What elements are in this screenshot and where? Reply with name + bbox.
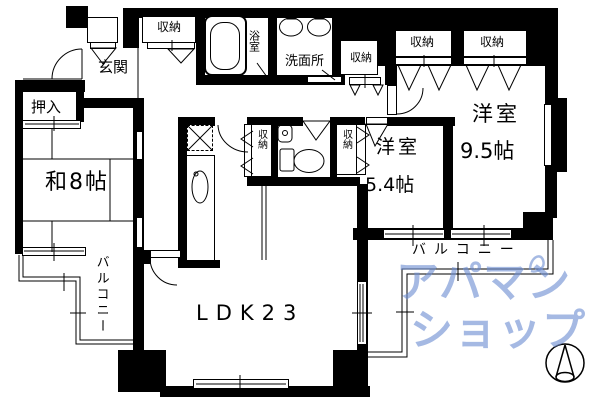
label-ldk: LDK23 [196, 302, 304, 324]
kitchen-sink-icon [192, 171, 208, 203]
label-washroom: 洗面所 [285, 55, 324, 69]
label-genkan: 玄関 [98, 60, 128, 76]
entrance-door-icon [52, 49, 82, 79]
label-storage-kitchen: 収納 [255, 129, 266, 149]
label-bedroom2-size: 5.4帖 [365, 176, 414, 196]
wash-basin-icons [280, 13, 331, 36]
watermark-line2: ショップ [410, 296, 586, 358]
stove-icon [188, 126, 212, 150]
label-balcony-left: バルコニー [94, 255, 108, 335]
label-storage-small: 収納 [350, 52, 372, 64]
label-bedroom1-size: 9.5帖 [460, 140, 514, 162]
label-oshiire: 押入 [31, 100, 61, 116]
toilet-door-icon [303, 121, 330, 140]
label-storage-hall: 収納 [157, 21, 181, 34]
kitchen-partition [262, 186, 266, 260]
kitchen-door-arc [218, 125, 248, 152]
label-washitsu: 和8帖 [45, 171, 109, 194]
storage-hall-door-icon [168, 49, 194, 63]
washroom-leader [322, 70, 335, 80]
label-storage-closet1: 収納 [410, 36, 434, 49]
bedroom1-door-arc [397, 88, 423, 114]
closet2-door-icon [466, 65, 521, 90]
storage-bed2-fold-icon [357, 127, 369, 173]
label-bathroom: 浴室 [248, 30, 260, 52]
toilet-icon [280, 149, 324, 173]
closet1-door-icon [398, 65, 451, 90]
floorplan: 玄関 押入 和8帖 収納 浴室 洗面所 収納 収納 収納 収納 収納 洋室 9.… [0, 0, 600, 400]
ldk-door-arc [150, 258, 177, 285]
label-bedroom2-name: 洋室 [376, 138, 420, 158]
bathroom-leader [257, 63, 267, 77]
toilet-basin-icon [278, 125, 292, 142]
storage-kitchen-fold-icon [241, 131, 253, 174]
label-storage-closet2: 収納 [480, 36, 504, 49]
label-storage-bed2: 収納 [340, 129, 351, 149]
balcony-left-railing [19, 255, 133, 344]
storage-small-door-icon [350, 85, 383, 95]
label-bedroom1-name: 洋室 [472, 103, 520, 125]
